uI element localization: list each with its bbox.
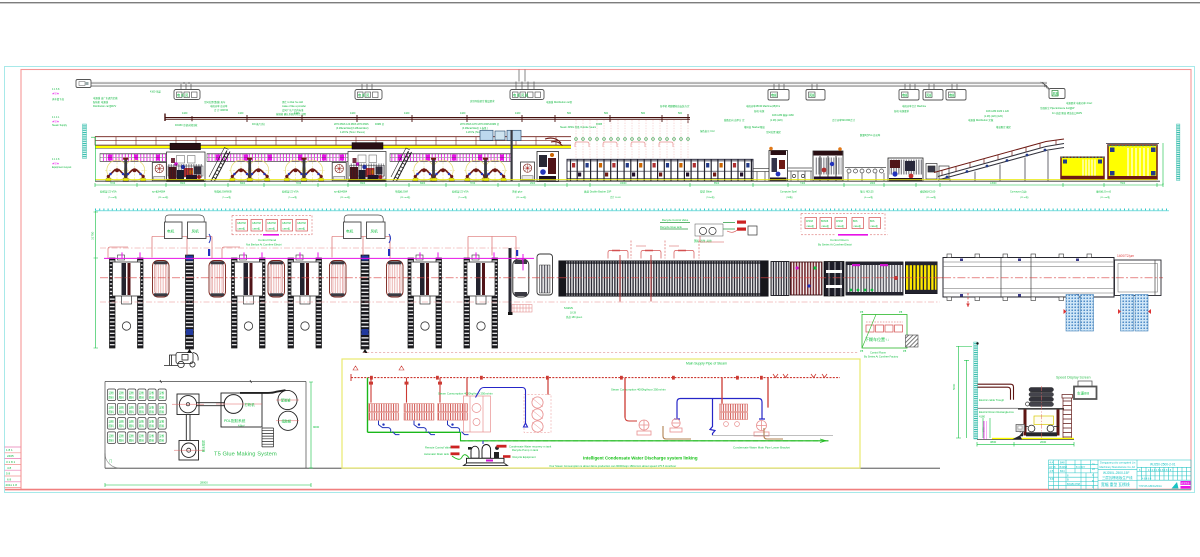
svg-text:淀粉: 淀粉 bbox=[159, 405, 165, 409]
svg-text:烘道 Double Backer 20P: 烘道 Double Backer 20P bbox=[584, 190, 612, 194]
svg-text:2011 1 8: 2011 1 8 bbox=[6, 483, 18, 487]
svg-text:584: 584 bbox=[604, 112, 609, 115]
svg-text:B0S: B0S bbox=[853, 220, 858, 223]
svg-text:4160: 4160 bbox=[238, 112, 244, 115]
svg-text:4P468: 4P468 bbox=[836, 220, 844, 223]
svg-text:2900: 2900 bbox=[870, 183, 876, 185]
svg-text:1400/T2/µm: 1400/T2/µm bbox=[1117, 254, 1134, 258]
svg-text:case机: case机 bbox=[837, 224, 845, 228]
svg-text:堆码高 Stacker限高: 堆码高 Stacker限高 bbox=[744, 125, 765, 129]
svg-text:电源线 Distribution car带: 电源线 Distribution car带 bbox=[546, 100, 573, 104]
svg-text:make of like a provider: make of like a provider bbox=[282, 105, 306, 108]
svg-text:GB4768: GB4768 bbox=[282, 222, 291, 225]
svg-text:原料: 原料 bbox=[159, 396, 165, 400]
svg-text:Computer Spel: Computer Spel bbox=[780, 191, 797, 194]
svg-text:584: 584 bbox=[567, 112, 572, 115]
svg-text:淀粉: 淀粉 bbox=[129, 391, 135, 395]
svg-text:淀粉: 淀粉 bbox=[149, 420, 155, 424]
svg-text:Condensate Water Main Pipe Low: Condensate Water Main Pipe Lower Bracket bbox=[733, 446, 790, 450]
svg-text:3600: 3600 bbox=[180, 183, 186, 185]
svg-text:case机: case机 bbox=[822, 224, 830, 228]
svg-text:4160 吊架: 4160 吊架 bbox=[150, 90, 161, 94]
svg-text:电机功率45KW Machine(45)Pcs: 电机功率45KW Machine(45)Pcs bbox=[746, 104, 781, 108]
svg-text:B: B bbox=[1092, 479, 1094, 483]
svg-text:Conveyor 自动: Conveyor 自动 bbox=[1010, 190, 1027, 194]
svg-text:淀粉: 淀粉 bbox=[109, 434, 115, 438]
svg-text:case机: case机 bbox=[807, 224, 815, 228]
svg-text:淀粉: 淀粉 bbox=[139, 391, 145, 395]
svg-text:电机功率合计 Machine: 电机功率合计 Machine bbox=[902, 104, 927, 108]
svg-text:2870.RWS 120.RWS 2870.RWS: 2870.RWS 120.RWS 2870.RWS bbox=[334, 123, 369, 126]
svg-text:★证★: ★证★ bbox=[52, 91, 60, 95]
svg-text:原纸架 ZJ-V5A: 原纸架 ZJ-V5A bbox=[282, 190, 299, 194]
svg-text:风机: 风机 bbox=[809, 93, 816, 98]
svg-text:风机: 风机 bbox=[371, 229, 379, 234]
svg-text:淀粉: 淀粉 bbox=[109, 391, 115, 395]
svg-text:4160: 4160 bbox=[460, 112, 466, 115]
svg-text:2600: 2600 bbox=[530, 183, 536, 185]
svg-text:淀粉: 淀粉 bbox=[159, 420, 165, 424]
svg-text:Steam Consumption 4000kg/hour: Steam Consumption 4000kg/hour 250m/min bbox=[438, 392, 493, 396]
svg-text:4.28 Pa (Tons / Pieces): 4.28 Pa (Tons / Pieces) bbox=[340, 131, 365, 134]
svg-text:原料: 原料 bbox=[149, 439, 155, 443]
svg-text:6900: 6900 bbox=[420, 183, 426, 185]
svg-text:★证★: ★证★ bbox=[52, 161, 60, 165]
svg-text:T5 Glue Making System: T5 Glue Making System bbox=[214, 452, 277, 458]
svg-text:电机: 电机 bbox=[771, 93, 778, 98]
svg-text:电 机 风: 电 机 风 bbox=[177, 93, 189, 98]
svg-text:原料: 原料 bbox=[139, 424, 145, 428]
svg-text:4 8 4 8 4 8 4 8 4 8 4 8: 4 8 4 8 4 8 4 8 4 8 4 8 bbox=[1148, 469, 1172, 472]
svg-text:GB4768: GB4768 bbox=[297, 222, 306, 225]
svg-text:原料: 原料 bbox=[159, 439, 165, 443]
svg-text:P8: P8 bbox=[903, 349, 907, 353]
svg-text:原料: 原料 bbox=[149, 410, 155, 414]
svg-text:原料: 原料 bbox=[129, 410, 135, 414]
svg-text:男仕 to that I've told: 男仕 to that I've told bbox=[282, 100, 304, 104]
svg-text:4P468: 4P468 bbox=[806, 220, 814, 223]
svg-text:淀粉: 淀粉 bbox=[119, 391, 125, 395]
svg-text:14500: 14500 bbox=[990, 183, 997, 185]
svg-text:WJ250-2500-2-01: WJ250-2500-2-01 bbox=[1150, 463, 1176, 467]
svg-text:淀粉: 淀粉 bbox=[119, 420, 125, 424]
svg-text:Electric Room Rectangle-box: Electric Room Rectangle-box bbox=[979, 410, 1014, 414]
svg-text:4 1 6 8: 4 1 6 8 bbox=[52, 88, 60, 91]
svg-text:(1.28) (120) (120): (1.28) (120) (120) bbox=[984, 115, 1003, 118]
svg-text:4 1 4 8: 4 1 4 8 bbox=[52, 158, 60, 161]
svg-text:电机: 电机 bbox=[949, 93, 956, 98]
svg-text:电源线 由广东通力定做: 电源线 由广东通力定做 bbox=[93, 96, 118, 100]
svg-text:Main Supply Pipe of Steam: Main Supply Pipe of Steam bbox=[686, 362, 727, 366]
svg-text:sp-机640B4: sp-机640B4 bbox=[334, 190, 348, 194]
svg-text:原料: 原料 bbox=[139, 439, 145, 443]
svg-text:Steam 3456L 特殊 Outside Steam: Steam 3456L 特殊 Outside Steam bbox=[560, 125, 596, 129]
svg-text:case机: case机 bbox=[871, 224, 879, 228]
svg-text:case机: case机 bbox=[253, 227, 261, 231]
svg-text:单面机 DWI: 单面机 DWI bbox=[395, 190, 408, 194]
svg-text:P8: P8 bbox=[860, 349, 864, 353]
svg-text:原纸架 ZJ-V5A: 原纸架 ZJ-V5A bbox=[100, 190, 117, 194]
svg-text:Recycle Control Valve: Recycle Control Valve bbox=[662, 218, 689, 222]
svg-text:case机: case机 bbox=[283, 227, 291, 231]
svg-text:Control Room: Control Room bbox=[830, 238, 849, 242]
svg-text:原料: 原料 bbox=[159, 410, 165, 414]
svg-text:40X4.280 4180 1.120: 40X4.280 4180 1.120 bbox=[986, 110, 1010, 113]
svg-text:淀粉: 淀粉 bbox=[119, 405, 125, 409]
svg-text:Automatic Drain tank: Automatic Drain tank bbox=[424, 452, 450, 456]
svg-text:P8: P8 bbox=[899, 310, 903, 314]
svg-text:B(GB)4768: B(GB)4768 bbox=[1067, 482, 1081, 486]
svg-text:三层瓦楞纸板生产线: 三层瓦楞纸板生产线 bbox=[1102, 475, 1133, 480]
svg-text:电机: 电机 bbox=[902, 93, 909, 98]
svg-text:各机 电源: 各机 电源 bbox=[754, 109, 765, 113]
svg-text:Your Steam Consumption is abou: Your Steam Consumption is about 4tons pr… bbox=[549, 464, 676, 468]
svg-text:天桥 glue: 天桥 glue bbox=[512, 190, 523, 194]
svg-text:Intelligent Condensate Water D: Intelligent Condensate Water Discharge s… bbox=[583, 455, 698, 460]
svg-text:淀粉: 淀粉 bbox=[139, 420, 145, 424]
svg-text:WJ250L-2500-15F: WJ250L-2500-15F bbox=[1103, 471, 1129, 475]
svg-text:31750: 31750 bbox=[91, 231, 95, 240]
svg-text:国标 四位 共用: 国标 四位 共用 bbox=[694, 239, 712, 243]
svg-text:淀粉: 淀粉 bbox=[149, 405, 155, 409]
svg-text:电 机 风 机: 电 机 风 机 bbox=[513, 93, 529, 98]
svg-text:case机: case机 bbox=[268, 227, 276, 231]
svg-text:1 8 1: 1 8 1 bbox=[6, 448, 13, 452]
svg-text:房顶导线架空 敷设要求: 房顶导线架空 敷设要求 bbox=[470, 99, 495, 103]
svg-text:堆高限定 确定: 堆高限定 确定 bbox=[996, 125, 1012, 129]
svg-text:数量6台Pcs 总功率: 数量6台Pcs 总功率 bbox=[860, 133, 881, 137]
svg-text:DN80 全: DN80 全 bbox=[490, 122, 500, 126]
svg-text:各单机 地脚螺栓由安装方定: 各单机 地脚螺栓由安装方定 bbox=[660, 104, 690, 108]
svg-text:合计功率520.RW合计: 合计功率520.RW合计 bbox=[832, 118, 856, 122]
svg-text:DN80 全: DN80 全 bbox=[375, 122, 385, 126]
svg-text:原料: 原料 bbox=[119, 424, 125, 428]
svg-text:原料: 原料 bbox=[119, 439, 125, 443]
svg-text:584: 584 bbox=[678, 112, 683, 115]
svg-text:40X4.280 粉碎 4180: 40X4.280 粉碎 4180 bbox=[772, 113, 794, 117]
svg-text:Equipment Layout: Equipment Layout bbox=[52, 166, 72, 169]
svg-text:空间位置(整线) 天车: 空间位置(整线) 天车 bbox=[204, 100, 226, 104]
svg-text:电机功率 总功率: 电机功率 总功率 bbox=[210, 104, 228, 108]
svg-text:7600: 7600 bbox=[1120, 183, 1126, 185]
svg-text:8500: 8500 bbox=[714, 183, 720, 185]
svg-text:B0S: B0S bbox=[870, 220, 875, 223]
svg-text:电机: 电机 bbox=[346, 229, 354, 234]
svg-text:Control Room: Control Room bbox=[870, 351, 886, 355]
svg-text:B44: B44 bbox=[1060, 469, 1065, 473]
svg-text:28000: 28000 bbox=[200, 481, 208, 485]
svg-text:宽幅 重型 瓦楞线: 宽幅 重型 瓦楞线 bbox=[1101, 482, 1130, 487]
svg-text:4160: 4160 bbox=[350, 112, 356, 115]
svg-text:原料: 原料 bbox=[129, 439, 135, 443]
svg-text:电源线 Distribution 定做: 电源线 Distribution 定做 bbox=[968, 118, 994, 122]
svg-text:原料: 原料 bbox=[109, 439, 115, 443]
svg-text:各机 电源要求: 各机 电源要求 bbox=[894, 109, 910, 113]
svg-text:原纸架 ZJ-V5A: 原纸架 ZJ-V5A bbox=[452, 190, 469, 194]
svg-text:Steam Supply: Steam Supply bbox=[52, 124, 68, 127]
svg-text:DN150 冷凝水管回收: DN150 冷凝水管回收 bbox=[175, 123, 198, 127]
svg-text:7400: 7400 bbox=[800, 183, 806, 185]
svg-text:原料: 原料 bbox=[149, 424, 155, 428]
svg-text:原料: 原料 bbox=[129, 396, 135, 400]
svg-text:堆码机 Dn-n5: 堆码机 Dn-n5 bbox=[1096, 190, 1112, 194]
svg-text:sp-机640B4: sp-机640B4 bbox=[152, 190, 166, 194]
svg-text:空间位置 确定: 空间位置 确定 bbox=[766, 130, 782, 134]
svg-text:DN 蒸汽(升): DN 蒸汽(升) bbox=[252, 122, 265, 126]
svg-text:风机: 风机 bbox=[926, 93, 933, 98]
svg-text:单面机 DWI80B: 单面机 DWI80B bbox=[214, 190, 232, 194]
svg-text:DN65: DN65 bbox=[596, 123, 603, 126]
svg-text:Not Berlow At Comfree Electri: Not Berlow At Comfree Electri bbox=[246, 243, 282, 247]
svg-text:合 计:460KW: 合 计:460KW bbox=[214, 108, 229, 112]
svg-text:B48: B48 bbox=[1060, 460, 1065, 464]
svg-text:天车梁下高: 天车梁下高 bbox=[52, 97, 65, 101]
svg-text:584: 584 bbox=[641, 112, 646, 115]
svg-text:8 4 B4Y: 8 4 B4Y bbox=[1076, 465, 1085, 469]
svg-text:原料: 原料 bbox=[159, 424, 165, 428]
svg-text:Machinery Manufacture Co.,lt: Machinery Manufacture Co.,ltd bbox=[1100, 465, 1136, 469]
svg-text:5 8: 5 8 bbox=[6, 472, 11, 476]
svg-text:淀粉: 淀粉 bbox=[129, 420, 135, 424]
svg-text:4m 高度 限高 紧急出口RWS: 4m 高度 限高 紧急出口RWS bbox=[1052, 111, 1082, 115]
svg-text:配电柜 电源线: 配电柜 电源线 bbox=[93, 100, 109, 104]
svg-text:4 B: 4 B bbox=[1050, 469, 1054, 473]
svg-text:淀粉: 淀粉 bbox=[139, 434, 145, 438]
svg-text:3 1 8 1: 3 1 8 1 bbox=[6, 460, 16, 464]
svg-text:Remote Control Valve: Remote Control Valve bbox=[425, 445, 452, 449]
svg-text:(1.28) (120): (1.28) (120) bbox=[770, 119, 783, 122]
svg-text:case机: case机 bbox=[238, 227, 246, 231]
svg-text:PDL配胶系统: PDL配胶系统 bbox=[224, 418, 246, 423]
svg-text:19600: 19600 bbox=[620, 183, 627, 185]
svg-text:淀粉: 淀粉 bbox=[139, 405, 145, 409]
svg-text:3800: 3800 bbox=[990, 440, 997, 444]
svg-text:原料: 原料 bbox=[109, 396, 115, 400]
svg-text:烘道 180 green: 烘道 180 green bbox=[566, 315, 583, 319]
svg-text:4160: 4160 bbox=[515, 112, 521, 115]
svg-text:原料: 原料 bbox=[109, 410, 115, 414]
svg-text:淀粉: 淀粉 bbox=[119, 434, 125, 438]
svg-text:淀粉: 淀粉 bbox=[129, 434, 135, 438]
svg-text:5x9t8x5t: 5x9t8x5t bbox=[564, 307, 573, 310]
svg-text:线路走向 由甲方 定: 线路走向 由甲方 定 bbox=[724, 118, 745, 122]
svg-text:B0S68: B0S68 bbox=[821, 220, 829, 223]
svg-text:7150: 7150 bbox=[470, 183, 476, 185]
svg-text:3600: 3600 bbox=[360, 183, 366, 185]
svg-text:4180: 4180 bbox=[979, 415, 985, 419]
svg-text:淀粉: 淀粉 bbox=[109, 405, 115, 409]
svg-text:6900: 6900 bbox=[240, 183, 246, 185]
svg-text:Speed Display Screen: Speed Display Screen bbox=[1056, 376, 1091, 380]
svg-text:(3.28kcal/1kw²)( 1 卷纸 ): (3.28kcal/1kw²)( 1 卷纸 ) bbox=[462, 126, 488, 130]
svg-text:7150: 7150 bbox=[110, 183, 116, 185]
svg-text:(3.28kcal/1kw²)(3.28kcal/1kw²): (3.28kcal/1kw²)(3.28kcal/1kw²) bbox=[336, 127, 369, 130]
svg-text:原料: 原料 bbox=[109, 424, 115, 428]
svg-text:GB4768: GB4768 bbox=[267, 222, 276, 225]
svg-text:电源要求 电机功率 4 kw²: 电源要求 电机功率 4 kw² bbox=[1066, 101, 1092, 105]
svg-text:4160: 4160 bbox=[182, 112, 188, 115]
svg-text:储胶罐: 储胶罐 bbox=[282, 418, 292, 423]
svg-text:Control Panel: Control Panel bbox=[258, 238, 277, 242]
svg-text:By Series At Comfree Electri: By Series At Comfree Electri bbox=[818, 243, 852, 247]
svg-text:By Series At Comfree Factory: By Series At Comfree Factory bbox=[864, 355, 899, 359]
svg-text:6 8: 6 8 bbox=[7, 477, 12, 481]
svg-text:Distribution car带RVV: Distribution car带RVV bbox=[93, 104, 117, 108]
svg-text:原料: 原料 bbox=[149, 396, 155, 400]
svg-text:原料: 原料 bbox=[139, 410, 145, 414]
svg-text:双切 Slitter: 双切 Slitter bbox=[700, 190, 712, 194]
svg-text:风机: 风机 bbox=[192, 229, 200, 234]
svg-text:淀粉: 淀粉 bbox=[149, 391, 155, 395]
svg-text:GB4768: GB4768 bbox=[252, 222, 261, 225]
svg-text:原料: 原料 bbox=[129, 424, 135, 428]
svg-text:2465: 2465 bbox=[7, 454, 14, 458]
svg-text:2600: 2600 bbox=[1040, 440, 1047, 444]
svg-text:打粉机: 打粉机 bbox=[245, 402, 256, 407]
svg-text:4160: 4160 bbox=[404, 112, 410, 115]
svg-text:电 机 风: 电 机 风 bbox=[358, 93, 370, 98]
svg-text:风机: 风机 bbox=[1053, 91, 1060, 96]
svg-text:4160: 4160 bbox=[294, 112, 300, 115]
svg-text:Steam Consumption 4000kg/hour: Steam Consumption 4000kg/hour 250m/min bbox=[611, 388, 666, 392]
svg-text:case机: case机 bbox=[854, 224, 862, 228]
svg-text:淀粉: 淀粉 bbox=[159, 391, 165, 395]
svg-text:淀粉: 淀粉 bbox=[159, 434, 165, 438]
svg-text:case机: case机 bbox=[298, 227, 306, 231]
svg-text:5000: 5000 bbox=[952, 383, 956, 390]
svg-text:Dongguang city corrugated Li: Dongguang city corrugated Lin bbox=[1100, 461, 1136, 465]
svg-text:原料: 原料 bbox=[119, 396, 125, 400]
svg-text:9000: 9000 bbox=[313, 425, 320, 429]
svg-text:★证★: ★证★ bbox=[52, 119, 60, 123]
svg-text:4 1 4 1: 4 1 4 1 bbox=[52, 116, 60, 119]
svg-text:7YRVPLGBNGZR1A: 7YRVPLGBNGZR1A bbox=[1139, 485, 1163, 488]
svg-text:32 98: 32 98 bbox=[1049, 465, 1056, 469]
svg-text:Recycle Equipment: Recycle Equipment bbox=[513, 455, 536, 459]
svg-text:4.8m²: 4.8m² bbox=[238, 424, 245, 428]
svg-text:Condensate Water recovery m ta: Condensate Water recovery m tank bbox=[509, 445, 552, 449]
svg-text:空调防尘 Pipe Entrance 4x2架W: 空调防尘 Pipe Entrance 4x2架W bbox=[1040, 106, 1075, 110]
svg-text:18 28: 18 28 bbox=[570, 312, 577, 315]
svg-text:电机: 电机 bbox=[167, 229, 175, 234]
svg-text:2870.RWS 1870 2870.RWS: 2870.RWS 1870 2870.RWS bbox=[460, 123, 490, 126]
svg-text:门: 门 bbox=[109, 458, 112, 463]
svg-text:薄刀 ND125: 薄刀 ND125 bbox=[860, 190, 874, 194]
svg-text:原料: 原料 bbox=[139, 396, 145, 400]
svg-text:Electric cable Trough: Electric cable Trough bbox=[979, 398, 1005, 402]
svg-text:GB4768: GB4768 bbox=[237, 222, 246, 225]
svg-text:车速8/8: 车速8/8 bbox=[1077, 391, 1089, 396]
svg-text:Recycle Pump m tank: Recycle Pump m tank bbox=[512, 448, 539, 452]
svg-text:P8: P8 bbox=[860, 310, 864, 314]
svg-text:8 B: 8 B bbox=[1050, 477, 1054, 481]
svg-text:Recycle Glue tank: Recycle Glue tank bbox=[660, 225, 682, 229]
svg-text:B: B bbox=[1067, 478, 1069, 482]
svg-text:淀粉: 淀粉 bbox=[109, 420, 115, 424]
svg-text:4 8 4 8 4: 4 8 4 8 4 bbox=[1142, 477, 1152, 480]
svg-text:胶水泵房: 胶水泵房 bbox=[201, 440, 206, 452]
svg-text:下糊车位置↑↓: 下糊车位置↑↓ bbox=[865, 336, 889, 342]
svg-text:B4368: B4368 bbox=[1060, 465, 1068, 469]
svg-text:4 A: 4 A bbox=[1050, 460, 1054, 464]
svg-text:横切机NC160: 横切机NC160 bbox=[920, 190, 936, 194]
svg-text:绿色表示 Cm²: 绿色表示 Cm² bbox=[700, 129, 715, 133]
svg-text:淀粉: 淀粉 bbox=[129, 405, 135, 409]
svg-text:淀粉: 淀粉 bbox=[149, 434, 155, 438]
svg-text:7150: 7150 bbox=[296, 183, 302, 185]
svg-text:配胶罐: 配胶罐 bbox=[281, 398, 291, 403]
svg-text:4 8: 4 8 bbox=[7, 466, 12, 470]
svg-text:原料: 原料 bbox=[119, 410, 125, 414]
